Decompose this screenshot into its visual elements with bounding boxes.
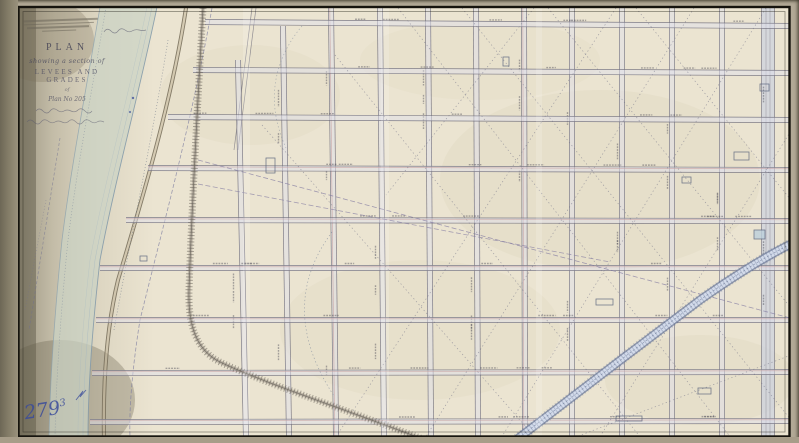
stamp-illegible-line: [27, 25, 89, 29]
sheet-bottom-edge: [0, 437, 799, 443]
signature-squiggle: [102, 26, 148, 36]
title-plan-ref: Plan No 205: [14, 96, 120, 103]
stamp-illegible-line: [42, 29, 76, 32]
title-subtitle: showing a section of: [14, 57, 120, 65]
illegible-script-line: [25, 117, 109, 125]
title-connector: of: [14, 87, 120, 93]
title-block: PLAN showing a section of LEVEES AND GRA…: [14, 42, 120, 125]
map-sheet: PLAN showing a section of LEVEES AND GRA…: [0, 0, 799, 443]
title-subject: LEVEES AND GRADES: [14, 68, 120, 84]
ink-flourish-icon: [74, 388, 90, 402]
title-plan: PLAN: [14, 42, 120, 53]
illegible-script-line: [34, 106, 100, 114]
library-stamp: [24, 18, 102, 35]
